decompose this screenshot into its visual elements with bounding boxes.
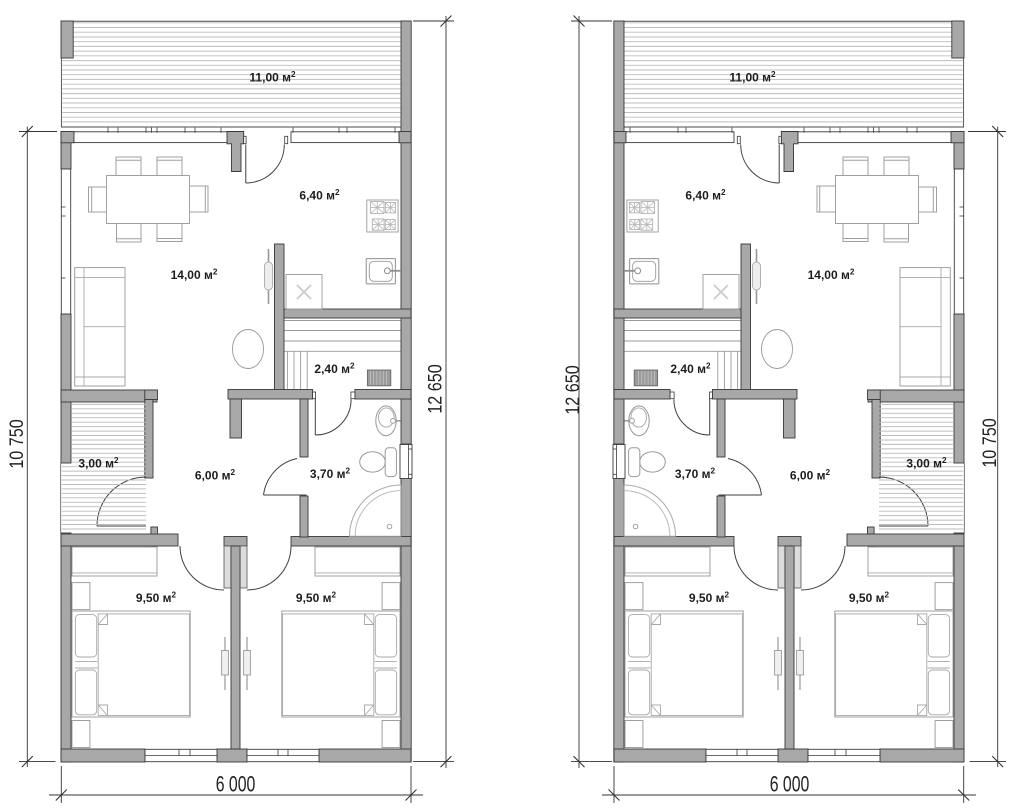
svg-text:2,40 м2: 2,40 м2 <box>314 362 355 376</box>
svg-text:12 650: 12 650 <box>562 365 584 415</box>
svg-text:11,00 м2: 11,00 м2 <box>729 70 776 84</box>
svg-text:3,00 м2: 3,00 м2 <box>906 456 947 470</box>
svg-text:9,50 м2: 9,50 м2 <box>136 591 177 605</box>
svg-text:10 750: 10 750 <box>979 418 1001 468</box>
svg-text:11,00 м2: 11,00 м2 <box>249 70 296 84</box>
svg-text:3,70 м2: 3,70 м2 <box>675 467 716 481</box>
svg-text:6,00 м2: 6,00 м2 <box>195 468 236 482</box>
svg-text:6,40 м2: 6,40 м2 <box>685 188 726 202</box>
svg-text:9,50 м2: 9,50 м2 <box>296 591 337 605</box>
svg-text:14,00 м2: 14,00 м2 <box>808 268 855 282</box>
svg-text:3,00 м2: 3,00 м2 <box>78 456 119 470</box>
svg-text:6,00 м2: 6,00 м2 <box>790 468 831 482</box>
svg-text:9,50 м2: 9,50 м2 <box>689 591 730 605</box>
svg-text:6 000: 6 000 <box>770 773 810 797</box>
svg-text:2,40 м2: 2,40 м2 <box>670 362 711 376</box>
svg-text:6 000: 6 000 <box>216 773 256 797</box>
svg-text:10 750: 10 750 <box>6 419 28 469</box>
svg-text:9,50 м2: 9,50 м2 <box>849 591 890 605</box>
svg-text:12 650: 12 650 <box>424 364 446 414</box>
svg-text:14,00 м2: 14,00 м2 <box>171 268 218 282</box>
svg-text:6,40 м2: 6,40 м2 <box>299 188 340 202</box>
svg-text:3,70 м2: 3,70 м2 <box>310 467 351 481</box>
